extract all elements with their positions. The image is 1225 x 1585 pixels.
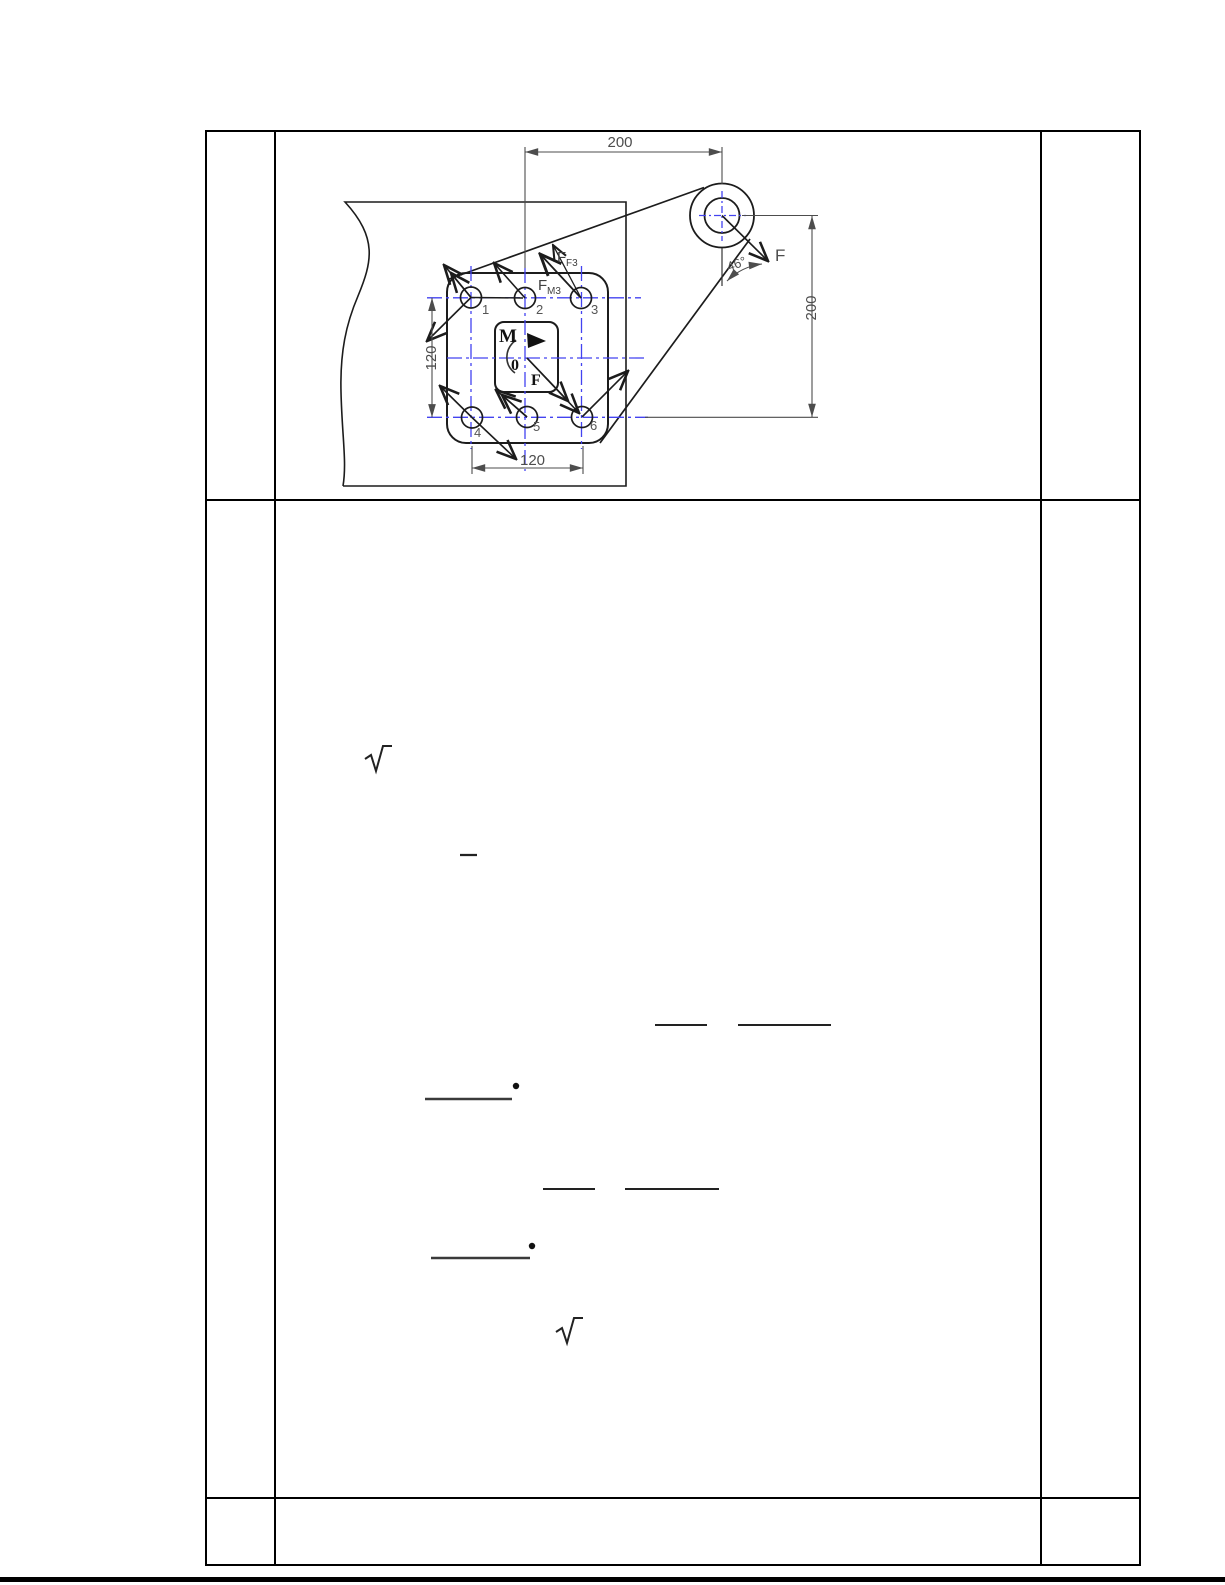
bolt-label: 4 [474,425,481,440]
radical-icon [556,1318,583,1343]
moment-label: M [499,326,517,347]
solution-math-marks [365,746,831,1343]
ff3-label: F [557,249,566,266]
center-force-label: F [531,372,541,389]
bolt-label: 2 [536,302,543,317]
multiplication-dot [513,1083,519,1089]
figure-overlay: 200 200 120 120 46° F 1 2 3 4 5 6 F F3 F [0,0,1225,1585]
fm3-subscript: M3 [547,286,561,297]
origin-label: 0 [511,357,519,374]
dim-bottom-label: 120 [520,452,545,469]
radical-icon [365,746,392,771]
bolt-label: 5 [533,419,540,434]
ff3-subscript: F3 [566,258,578,269]
bracket-drawing: 200 200 120 120 46° F 1 2 3 4 5 6 F F3 F [341,134,820,486]
external-force-label: F [775,246,785,265]
external-force-arrow [722,216,768,262]
dimension-lines [432,147,818,474]
multiplication-dot [529,1243,535,1249]
fm3-label: F [538,277,547,294]
document-page: 200 200 120 120 46° F 1 2 3 4 5 6 F F3 F [0,0,1225,1585]
angle-label: 46° [725,253,749,274]
dim-top-label: 200 [607,134,632,151]
dim-left-label: 120 [423,345,440,370]
bolt-label: 1 [482,302,489,317]
bolt-label: 6 [590,418,597,433]
dim-right-label: 200 [803,295,820,320]
bolt-label: 3 [591,302,598,317]
moment-arrowhead-icon [527,333,546,348]
